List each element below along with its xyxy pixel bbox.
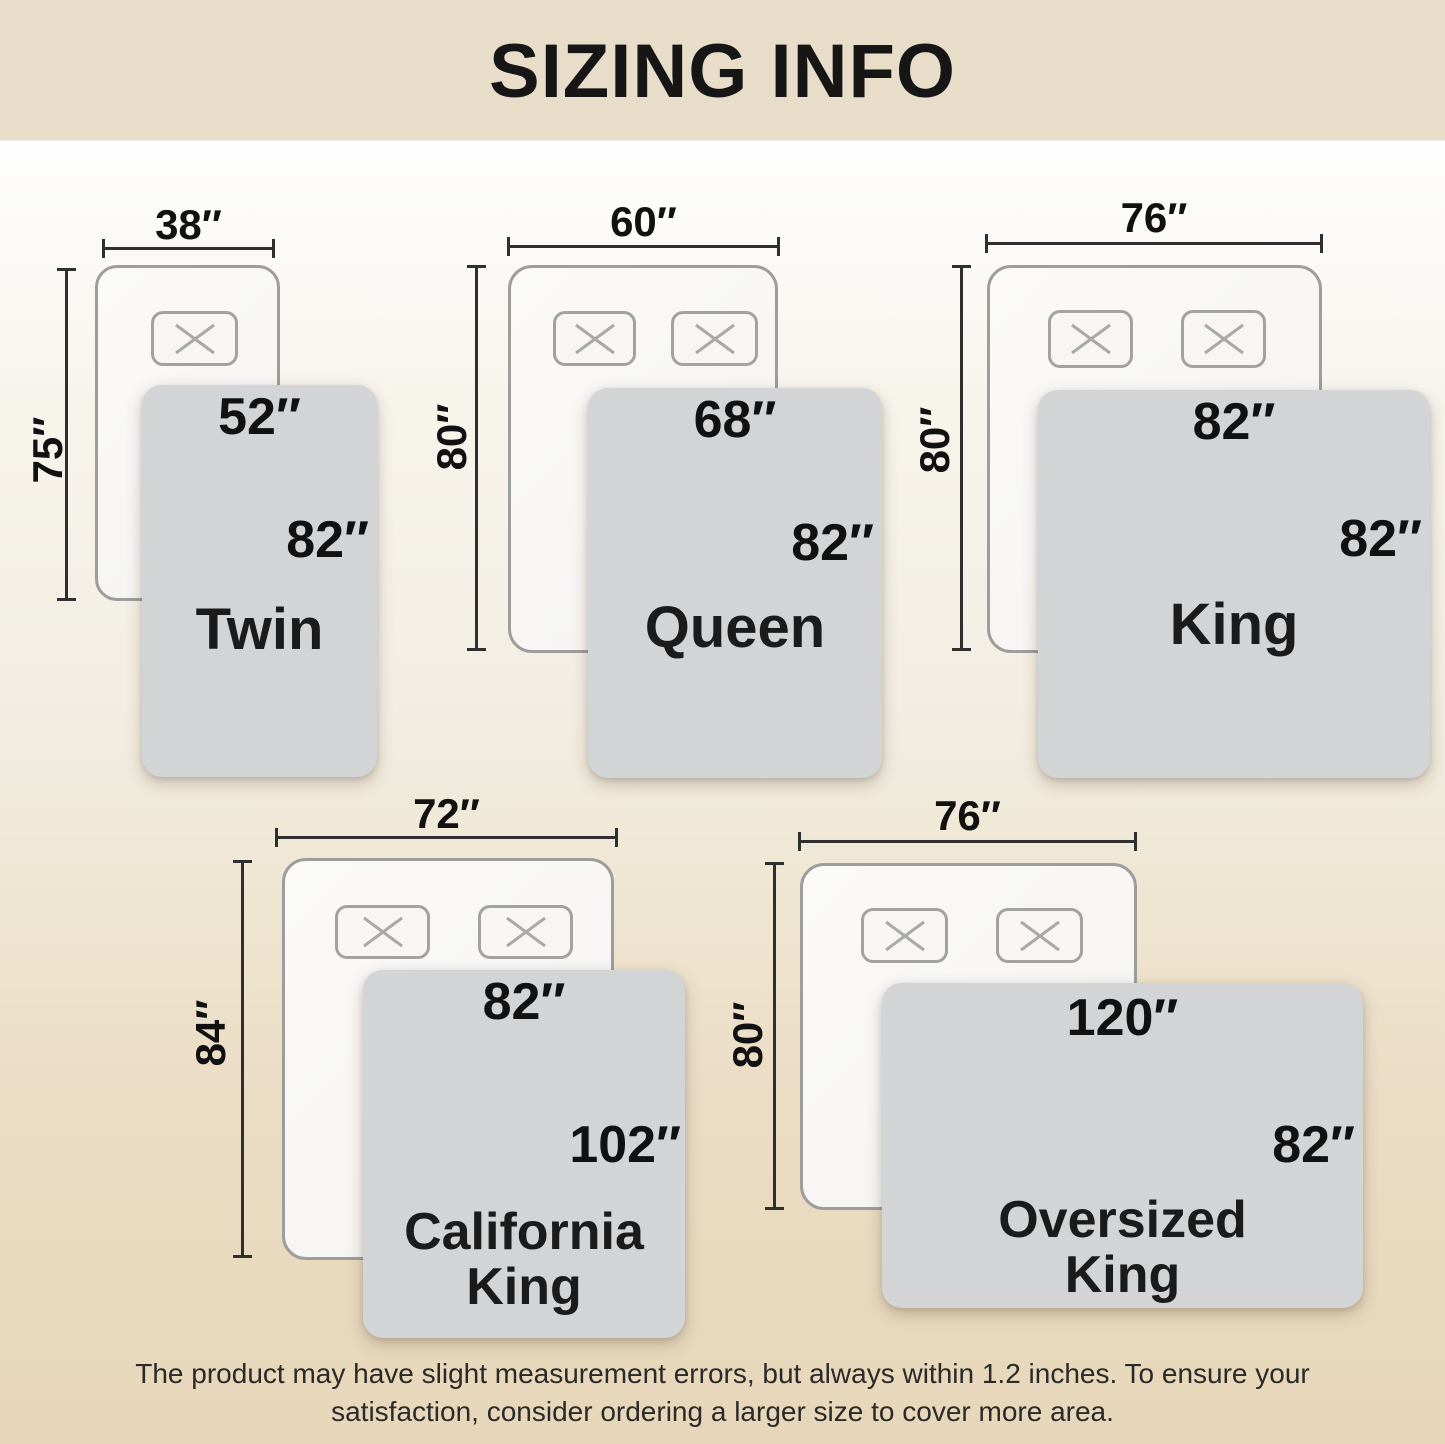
height-dimension-line [233, 860, 252, 1258]
bed-width-label: 76″ [985, 196, 1323, 240]
pillow-shape [335, 905, 430, 959]
page-title: SIZING INFO [0, 0, 1445, 140]
bed-width-label: 60″ [507, 200, 780, 244]
bed-height-label: 80″ [913, 370, 957, 510]
diagram-king: 76″ 80″ 82″ 82″ King [920, 200, 1445, 800]
blanket-length-label: 82″ [286, 513, 369, 567]
diagram-queen: 60″ 80″ 68″ 82″ Queen [440, 200, 900, 800]
size-name-label: Twin [142, 600, 377, 660]
disclaimer-line1: The product may have slight measurement … [0, 1355, 1445, 1393]
diagram-oversized-king: 76″ 80″ 120″ 82″ Oversized King [735, 800, 1380, 1330]
pillow-x-icon [881, 918, 929, 954]
size-name-line2: King [363, 1260, 685, 1315]
disclaimer-line2: satisfaction, consider ordering a larger… [0, 1393, 1445, 1431]
blanket-shape: 82″ 102″ California King [363, 970, 685, 1338]
blanket-width-label: 52″ [142, 390, 377, 444]
pillow-shape [1181, 310, 1266, 368]
pillow-x-icon [502, 914, 550, 950]
size-name-line2: King [882, 1248, 1363, 1303]
blanket-shape: 120″ 82″ Oversized King [882, 983, 1363, 1308]
pillow-x-icon [1067, 321, 1115, 357]
size-name-line1: Twin [142, 600, 377, 660]
blanket-length-label: 82″ [791, 516, 874, 570]
blanket-shape: 68″ 82″ Queen [588, 388, 882, 778]
size-name-line1: Oversized [882, 1193, 1363, 1248]
pillow-x-icon [1200, 321, 1248, 357]
blanket-width-label: 82″ [363, 975, 685, 1029]
blanket-width-label: 82″ [1038, 395, 1430, 449]
size-name-line1: Queen [588, 598, 882, 658]
pillow-shape [1048, 310, 1133, 368]
blanket-shape: 82″ 82″ King [1038, 390, 1430, 778]
pillow-shape [996, 908, 1083, 963]
blanket-width-label: 120″ [882, 991, 1363, 1045]
size-name-label: Oversized King [882, 1193, 1363, 1303]
bed-width-label: 38″ [102, 203, 275, 247]
size-name-label: Queen [588, 598, 882, 658]
size-name-line1: California [363, 1205, 685, 1260]
pillow-shape [151, 311, 238, 366]
size-name-label: King [1038, 595, 1430, 655]
bed-height-label: 80″ [726, 965, 770, 1105]
diagram-california-king: 72″ 84″ 82″ 102″ California King [195, 800, 705, 1360]
pillow-x-icon [171, 321, 219, 357]
bed-width-label: 72″ [275, 792, 618, 836]
pillow-shape [671, 311, 758, 366]
pillow-x-icon [691, 321, 739, 357]
bed-height-label: 84″ [189, 963, 233, 1103]
blanket-width-label: 68″ [588, 393, 882, 447]
blanket-length-label: 102″ [569, 1118, 681, 1172]
header-banner: SIZING INFO [0, 0, 1445, 140]
pillow-x-icon [571, 321, 619, 357]
blanket-length-label: 82″ [1272, 1118, 1355, 1172]
pillow-shape [478, 905, 573, 959]
bed-height-label: 75″ [26, 380, 70, 520]
diagram-twin: 38″ 75″ 52″ 82″ Twin [30, 200, 450, 800]
pillow-x-icon [359, 914, 407, 950]
size-name-label: California King [363, 1205, 685, 1315]
disclaimer-text: The product may have slight measurement … [0, 1355, 1445, 1431]
bed-width-label: 76″ [798, 794, 1137, 838]
blanket-length-label: 82″ [1339, 512, 1422, 566]
sizing-infographic: SIZING INFO 38″ 75″ 52″ 82″ Twin 60″ [0, 0, 1445, 1444]
pillow-x-icon [1016, 918, 1064, 954]
pillow-shape [553, 311, 636, 366]
bed-height-label: 80″ [430, 367, 474, 507]
blanket-shape: 52″ 82″ Twin [142, 385, 377, 777]
pillow-shape [861, 908, 948, 963]
size-name-line1: King [1038, 595, 1430, 655]
